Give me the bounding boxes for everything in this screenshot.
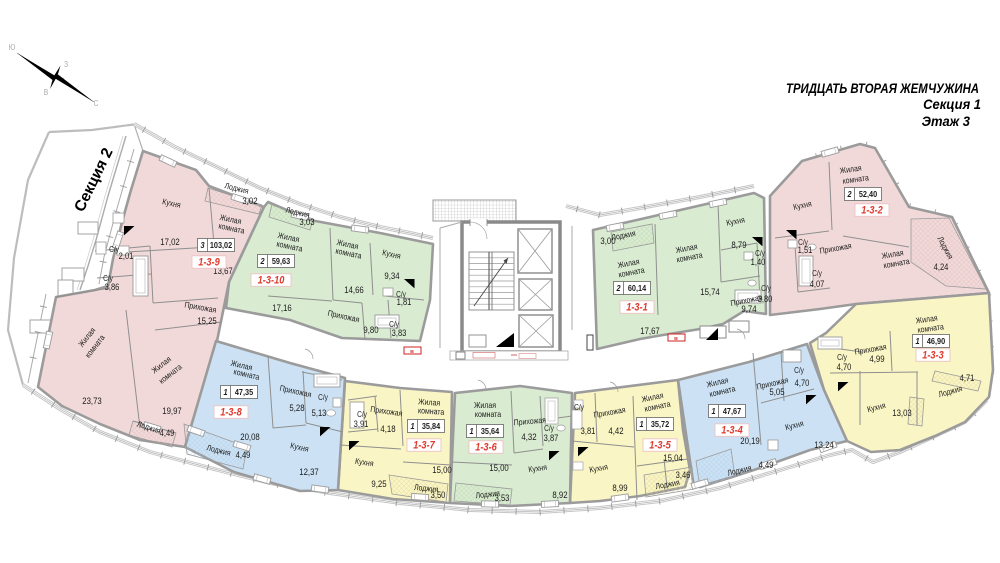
svg-text:17,67: 17,67 [640, 325, 660, 336]
svg-text:2: 2 [847, 190, 852, 200]
svg-text:9,34: 9,34 [384, 270, 399, 281]
svg-text:17,02: 17,02 [160, 236, 180, 247]
svg-text:1: 1 [469, 427, 474, 437]
svg-text:47,67: 47,67 [723, 407, 742, 417]
svg-text:1-3-4: 1-3-4 [721, 425, 743, 437]
svg-text:3,86: 3,86 [105, 281, 120, 292]
svg-text:1,40: 1,40 [751, 256, 766, 267]
svg-text:1-3-9: 1-3-9 [198, 257, 220, 269]
svg-text:3,80: 3,80 [758, 293, 773, 304]
svg-text:1: 1 [711, 407, 716, 417]
svg-text:17,16: 17,16 [272, 302, 292, 313]
svg-text:3,50: 3,50 [431, 489, 446, 500]
svg-text:3,81: 3,81 [581, 425, 596, 436]
svg-text:3,91: 3,91 [354, 418, 369, 429]
svg-text:1-3-2: 1-3-2 [861, 205, 883, 217]
svg-text:комната: комната [475, 409, 502, 419]
svg-text:20,19: 20,19 [740, 435, 760, 446]
svg-text:1-3-10: 1-3-10 [258, 275, 285, 287]
svg-text:60,14: 60,14 [628, 284, 647, 294]
svg-text:С/у: С/у [761, 283, 771, 293]
svg-text:5,05: 5,05 [769, 386, 784, 397]
svg-text:1-3-5: 1-3-5 [649, 440, 671, 452]
svg-text:м: м [410, 349, 414, 355]
svg-text:20,08: 20,08 [240, 431, 260, 442]
svg-text:13,03: 13,03 [892, 407, 912, 418]
svg-text:15,04: 15,04 [663, 452, 683, 463]
svg-text:59,63: 59,63 [272, 257, 291, 267]
svg-text:4,18: 4,18 [380, 423, 395, 434]
svg-text:1-3-6: 1-3-6 [475, 442, 497, 454]
svg-text:35,84: 35,84 [422, 422, 441, 432]
svg-text:4,42: 4,42 [608, 425, 623, 436]
svg-text:1,51: 1,51 [798, 244, 813, 255]
svg-text:8,99: 8,99 [612, 482, 627, 493]
svg-text:1: 1 [915, 337, 920, 347]
svg-text:1: 1 [223, 388, 228, 398]
svg-text:8,79: 8,79 [731, 239, 746, 250]
svg-text:С/у: С/у [812, 268, 822, 278]
svg-text:3,03: 3,03 [299, 216, 314, 227]
svg-text:4,32: 4,32 [521, 431, 536, 442]
svg-text:47,35: 47,35 [235, 388, 254, 398]
svg-text:С/у: С/у [794, 365, 804, 375]
svg-text:23,73: 23,73 [82, 395, 102, 406]
svg-text:1: 1 [410, 422, 415, 432]
svg-text:4,49: 4,49 [236, 449, 251, 460]
svg-text:15,00: 15,00 [432, 464, 452, 475]
svg-text:8,92: 8,92 [552, 489, 567, 500]
svg-text:ТРИДЦАТЬ ВТОРАЯ ЖЕМЧУЖИНА: ТРИДЦАТЬ ВТОРАЯ ЖЕМЧУЖИНА [786, 81, 979, 96]
svg-text:1-3-1: 1-3-1 [626, 302, 648, 314]
svg-text:4,49: 4,49 [759, 459, 774, 470]
svg-text:1: 1 [639, 420, 644, 430]
svg-text:103,02: 103,02 [210, 241, 233, 251]
svg-text:9,74: 9,74 [741, 303, 756, 314]
svg-text:Секция 1: Секция 1 [923, 97, 981, 112]
svg-text:2: 2 [260, 257, 265, 267]
svg-text:3,53: 3,53 [495, 492, 510, 503]
svg-text:1-3-3: 1-3-3 [922, 350, 944, 362]
svg-text:комната: комната [418, 406, 446, 418]
svg-text:3,00: 3,00 [600, 235, 615, 246]
svg-text:4,24: 4,24 [934, 261, 949, 272]
svg-text:3,02: 3,02 [242, 195, 257, 206]
svg-text:З: З [64, 59, 69, 69]
svg-text:1-3-8: 1-3-8 [220, 407, 242, 419]
svg-text:С: С [94, 98, 99, 108]
svg-text:2,01: 2,01 [119, 250, 134, 261]
svg-text:4,71: 4,71 [960, 372, 975, 383]
svg-text:46,90: 46,90 [927, 337, 946, 347]
svg-text:С/у: С/у [574, 402, 584, 412]
svg-text:4,49: 4,49 [160, 427, 175, 438]
svg-text:3,83: 3,83 [392, 327, 407, 338]
svg-text:В: В [44, 87, 49, 97]
svg-text:14,66: 14,66 [344, 284, 364, 295]
svg-text:С/у: С/у [109, 244, 119, 254]
svg-text:Ю: Ю [9, 42, 16, 52]
svg-text:9,25: 9,25 [371, 478, 386, 489]
svg-text:2: 2 [616, 284, 621, 294]
svg-text:9,80: 9,80 [363, 324, 378, 335]
svg-text:Этаж 3: Этаж 3 [922, 114, 971, 129]
svg-text:52,40: 52,40 [859, 190, 878, 200]
svg-text:1,81: 1,81 [397, 296, 412, 307]
svg-text:5,28: 5,28 [289, 402, 304, 413]
svg-text:3: 3 [200, 241, 205, 251]
svg-text:35,64: 35,64 [481, 427, 500, 437]
svg-text:4,99: 4,99 [869, 353, 884, 364]
svg-text:15,74: 15,74 [700, 286, 720, 297]
svg-text:12,37: 12,37 [299, 466, 319, 477]
svg-text:19,97: 19,97 [162, 405, 182, 416]
svg-text:4,70: 4,70 [795, 377, 810, 388]
svg-text:15,00: 15,00 [489, 462, 509, 473]
svg-text:15,25: 15,25 [197, 315, 217, 326]
svg-text:5,13: 5,13 [312, 407, 327, 418]
svg-text:С/у: С/у [318, 392, 328, 402]
svg-text:13,24: 13,24 [814, 439, 834, 450]
svg-text:3,87: 3,87 [544, 432, 559, 443]
svg-text:4,70: 4,70 [837, 361, 852, 372]
svg-text:1-3-7: 1-3-7 [413, 440, 436, 452]
svg-text:35,72: 35,72 [651, 420, 670, 430]
svg-text:м: м [674, 336, 678, 342]
svg-text:4,07: 4,07 [810, 278, 825, 289]
